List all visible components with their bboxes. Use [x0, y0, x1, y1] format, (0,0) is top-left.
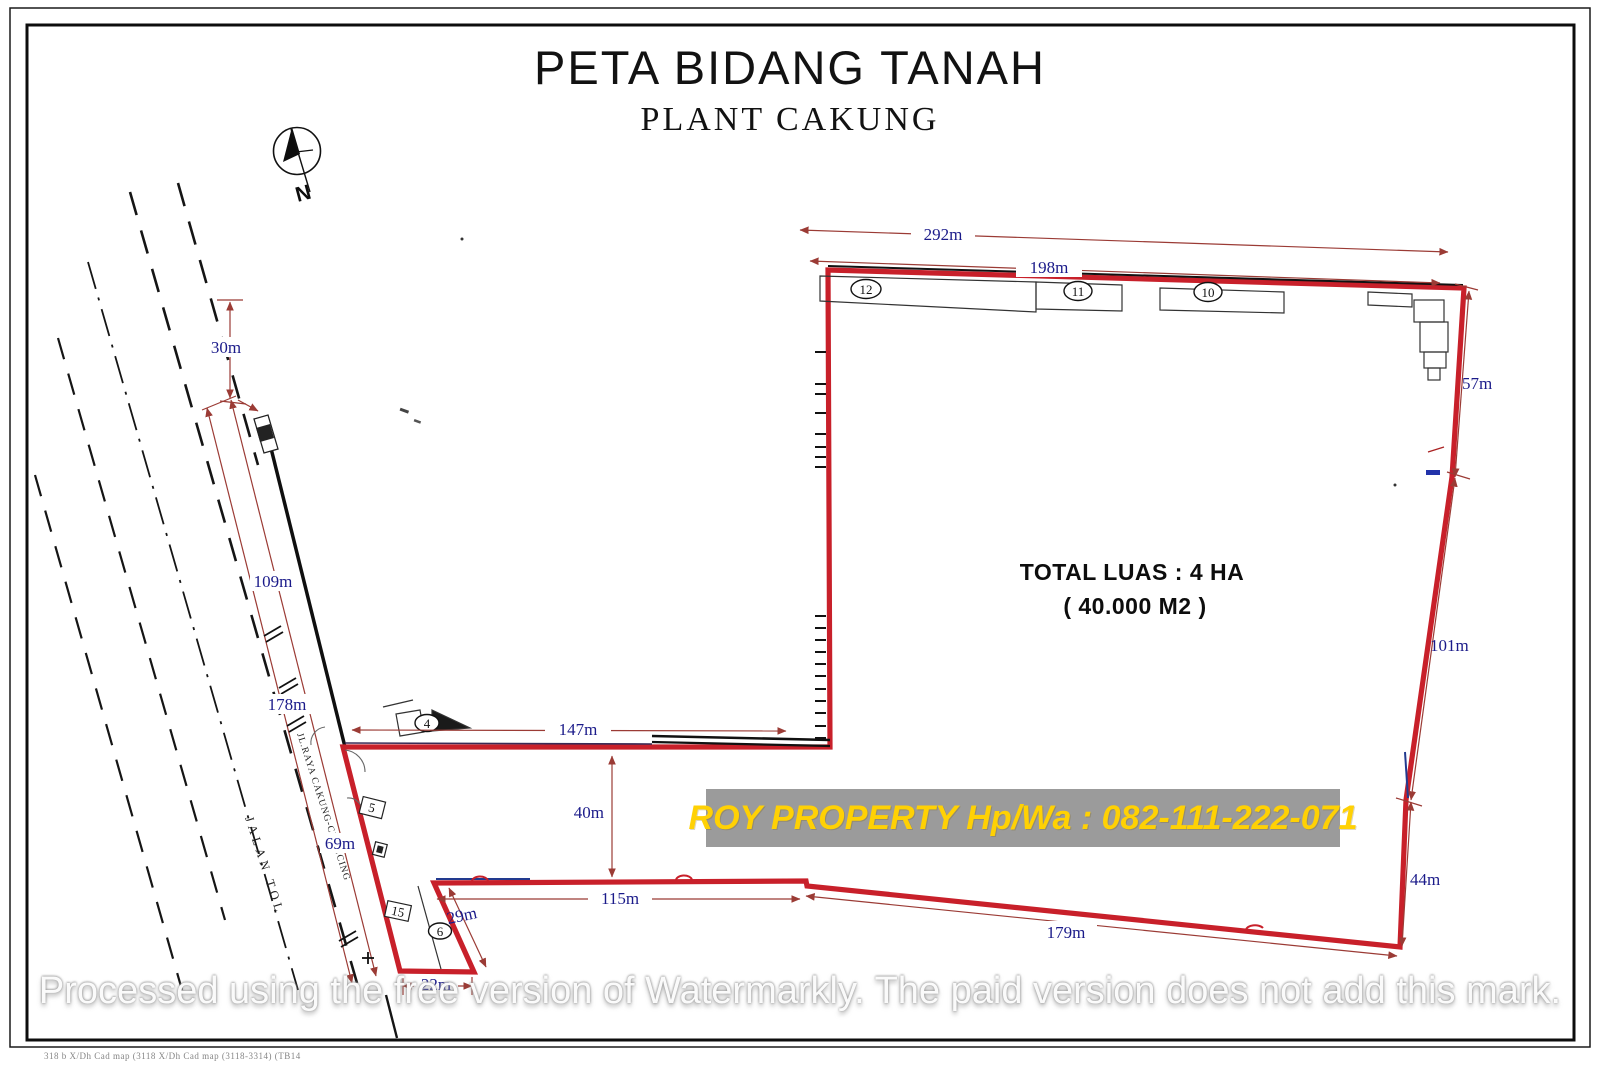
page-frame	[10, 8, 1590, 1047]
realtor-watermark-banner: ROY PROPERTY Hp/Wa : 082-111-222-071	[706, 789, 1340, 847]
boundary-tick-marks	[815, 352, 826, 738]
dim-road-lower: 69m	[325, 834, 355, 853]
dim-notch-gap: 40m	[574, 803, 604, 822]
dim-middle-edge: 147m	[559, 720, 598, 739]
compass-north-label: N	[293, 181, 314, 207]
watermarkly-text: Processed using the free version of Wate…	[0, 970, 1600, 1013]
dim-right-lower: 44m	[1410, 870, 1440, 889]
building-outlines	[383, 276, 1448, 736]
dim-right-middle: 101m	[1430, 636, 1469, 655]
dim-right-upper: 57m	[1462, 374, 1492, 393]
dim-road-upper: 109m	[254, 572, 293, 591]
total-area-annotation: TOTAL LUAS : 4 HA ( 40.000 M2 )	[1020, 559, 1244, 619]
page-subtitle: PLANT CAKUNG	[0, 101, 1580, 139]
dim-bottom-inner: 115m	[601, 889, 639, 908]
dim-road-total: 178m	[268, 695, 307, 714]
footer-fine-print: 318 b X/Dh Cad map (3118 X/Dh Cad map (3…	[44, 1051, 301, 1061]
plot-11-label: 11	[1072, 284, 1085, 299]
dim-top-inner: 198m	[1030, 258, 1069, 277]
road-edge-line	[254, 238, 1397, 748]
dim-leg-diagonal: 29m	[445, 903, 479, 928]
toll-road-label: JALAN TOL	[242, 815, 287, 917]
plot-10-label: 10	[1202, 285, 1215, 300]
toll-road-dashed-lines	[35, 183, 397, 1038]
dim-road-width: 30m	[211, 338, 241, 357]
plot-12-label: 12	[860, 282, 873, 297]
total-area-line1: TOTAL LUAS : 4 HA	[1020, 559, 1244, 585]
boundary-accent-lines	[311, 266, 1463, 969]
dimension-labels: 292m 198m 57m 101m 44m 179m 115m 22m 29m…	[211, 225, 1492, 994]
parcel-map-drawing: N JALAN TOL JL.RAYA CAKUNG-CILINCING	[0, 0, 1600, 1068]
survey-map-page: PETA BIDANG TANAH PLANT CAKUNG N	[0, 0, 1600, 1068]
title-block: PETA BIDANG TANAH PLANT CAKUNG	[0, 40, 1580, 139]
plot-6-label: 6	[437, 924, 444, 939]
dim-top-outer: 292m	[924, 225, 963, 244]
page-title: PETA BIDANG TANAH	[0, 40, 1580, 95]
road-dimension-lines	[202, 300, 376, 983]
plot-4-label: 4	[424, 716, 431, 731]
total-area-line2: ( 40.000 M2 )	[1063, 593, 1206, 619]
parcel-boundary	[343, 270, 1464, 972]
dimension-label-backgrounds	[205, 225, 1097, 993]
realtor-contact-text: ROY PROPERTY Hp/Wa : 082-111-222-071	[689, 799, 1358, 838]
dim-bottom-long: 179m	[1047, 923, 1086, 942]
